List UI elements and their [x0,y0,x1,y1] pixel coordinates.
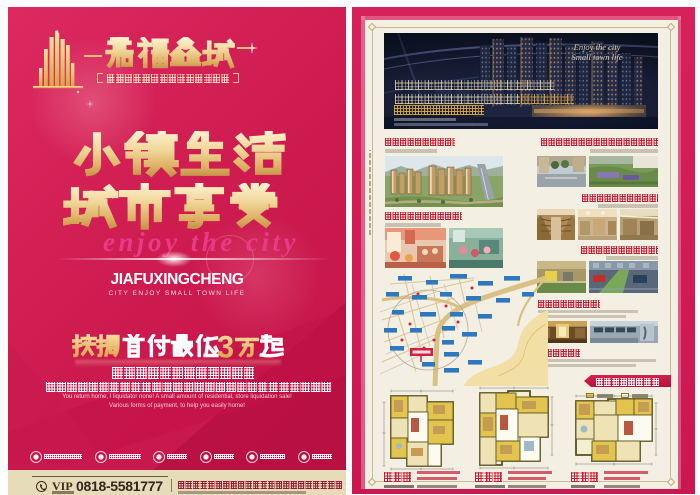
svg-text:3: 3 [217,334,234,359]
